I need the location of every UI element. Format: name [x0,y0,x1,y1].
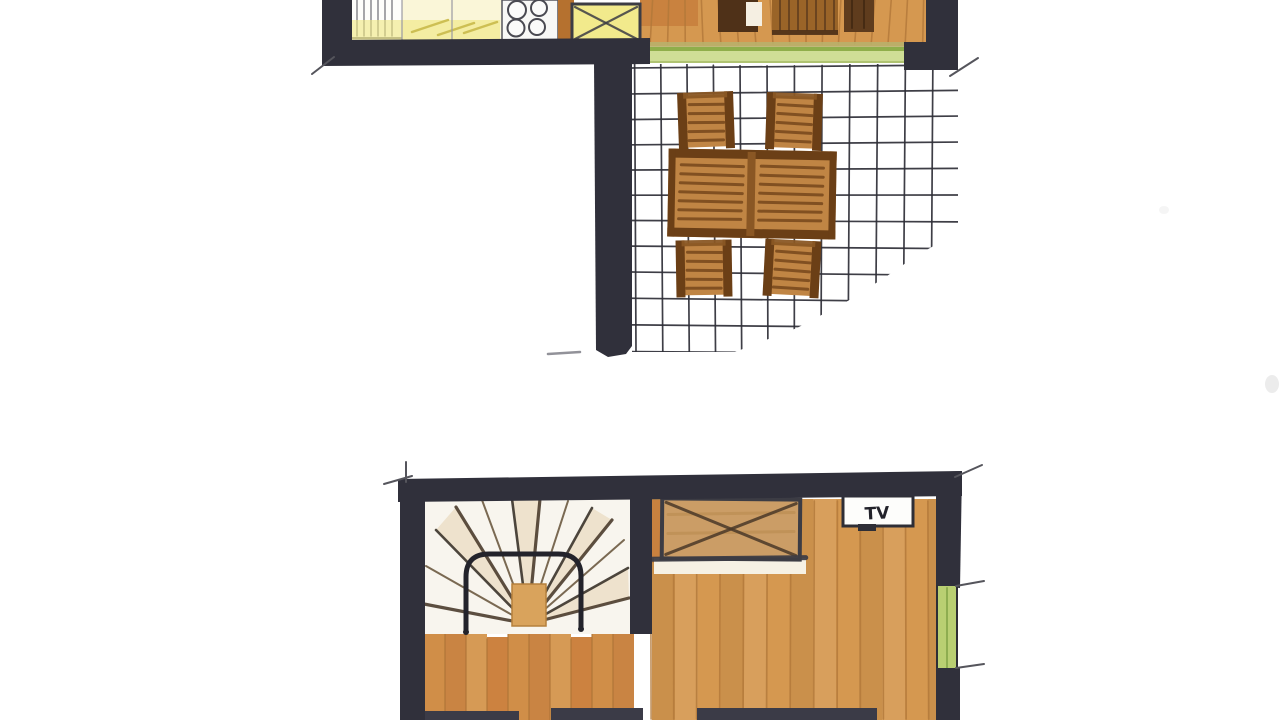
terrace-chair [763,239,822,299]
cutoff-furniture [551,708,643,720]
crossed-wardrobe [648,498,807,560]
sketch-page: TV [0,0,1280,720]
floor-plan-sketch: TV [0,0,1280,720]
upper-cutoff-furniture [718,0,874,35]
paper-smudges [1159,206,1279,393]
terrace-chair [765,92,823,151]
stair-newel-post [512,584,546,626]
upper-floor-plan [312,0,978,357]
terrace-chair [676,240,733,298]
patio-door [648,42,912,63]
terrace-table [667,149,837,240]
cutoff-furniture [417,711,519,720]
window-right-wall [937,586,957,670]
kitchen-area [350,0,640,42]
cutoff-furniture [697,708,877,720]
cooktop-burners [502,0,558,40]
sink-unit [572,4,640,42]
tv-label: TV [864,503,891,524]
winder-staircase [424,499,630,635]
terrace-chair [677,91,735,150]
lower-floor-plan: TV [384,462,984,720]
